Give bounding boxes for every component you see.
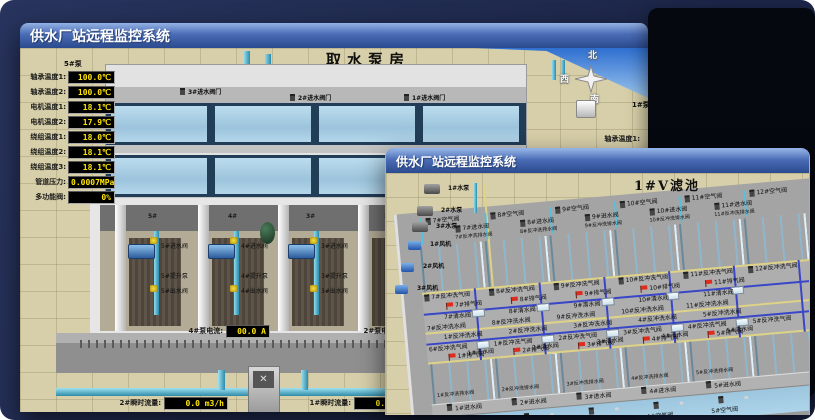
bay-inlet-valve-icon[interactable] <box>230 237 237 244</box>
front-window-titlebar[interactable]: 供水厂站远程监控系统 <box>386 149 809 173</box>
front-exhaust-valve-flag-icon[interactable] <box>514 348 520 353</box>
exhaust-valve-flag-icon[interactable] <box>706 280 712 285</box>
pump1-icon[interactable] <box>576 100 596 118</box>
value-display: 0% <box>68 191 115 204</box>
value-display: 0.0007MPa <box>68 176 115 189</box>
front-exhaust-valve-flag-icon[interactable] <box>579 342 585 347</box>
value-display: 17.9℃ <box>68 116 115 129</box>
front-exhaust-valve-flag-icon[interactable] <box>449 353 455 358</box>
inlet-valve-icon[interactable] <box>585 214 591 221</box>
flow2-display: 0.0 m3/h <box>164 397 228 410</box>
filter-cell-back[interactable] <box>744 213 809 264</box>
front-window-title: 供水厂站远程监控系统 <box>396 153 516 170</box>
backwash-drain-valve-label: 9#反冲洗排水阀 <box>585 221 623 229</box>
water-pump-icon[interactable] <box>412 222 428 232</box>
backwash-air-valve-icon[interactable] <box>618 277 624 284</box>
lift-pump[interactable] <box>208 244 235 259</box>
backwash-drain-valve-label: 11#反冲洗排水阀 <box>714 210 755 219</box>
hall-pillar <box>115 205 126 331</box>
pool-cell <box>319 106 415 142</box>
pump5-panel-header: 5#泵 <box>64 61 82 68</box>
bay-outlet-valve-icon[interactable] <box>310 285 317 292</box>
back-window-title: 供水厂站远程监控系统 <box>30 26 170 46</box>
panel-row-label: 绕组温度1: <box>22 134 66 141</box>
bay-pump-label: 5#提升泵 <box>161 274 188 280</box>
value-display: 18.1℃ <box>68 146 115 159</box>
backwash-drain-valve-label: 8#反冲洗排水阀 <box>520 227 558 235</box>
air-valve-icon[interactable] <box>749 190 755 197</box>
clean-water-tank-icon <box>601 297 615 306</box>
bay-inlet-valve-label: 5#进水阀 <box>161 244 188 250</box>
bay-number-label: 4# <box>228 214 237 220</box>
front-air-valve-icon[interactable] <box>718 396 724 403</box>
front-window: 供水厂站远程监控系统 1#V滤池 7#空气阀8#空气阀9#空气阀10#空气阀11… <box>385 148 810 415</box>
gate-valve-icon[interactable] <box>290 94 295 101</box>
hall-back-wall <box>100 205 396 231</box>
outlet-stub-pipe <box>218 370 225 390</box>
channel-float <box>550 413 554 415</box>
gate-valve-icon[interactable] <box>180 88 185 95</box>
value-display: 18.0℃ <box>68 131 115 144</box>
pool-cell <box>111 106 207 142</box>
front-exhaust-valve-flag-icon[interactable] <box>644 336 650 341</box>
bay-inlet-valve-icon[interactable] <box>150 237 157 244</box>
value-display: 18.1℃ <box>68 101 115 114</box>
pump1-header: 1#泵 <box>632 102 648 109</box>
air-valve-label: 10#空气阀 <box>627 199 658 208</box>
inlet-valve-icon[interactable] <box>714 203 720 210</box>
front-inlet-valve-icon[interactable] <box>641 387 647 394</box>
air-valve-icon[interactable] <box>684 195 690 202</box>
backwash-air-valve-icon[interactable] <box>554 283 560 290</box>
hall-pillar <box>358 205 369 331</box>
backwash-air-valve-icon[interactable] <box>683 272 689 279</box>
air-valve-icon[interactable] <box>620 201 626 208</box>
backwash-air-valve-icon[interactable] <box>748 266 754 273</box>
panel-row-label: 电机温度1: <box>22 104 66 111</box>
equipment-label: 3#水泵 <box>436 224 457 230</box>
bay-number-label: 3# <box>306 214 315 220</box>
filter-cell-front[interactable] <box>754 331 809 376</box>
front-air-valve-icon[interactable] <box>589 407 595 414</box>
value-display: 100.0℃ <box>68 71 115 84</box>
equipment-label: 1#水泵 <box>448 186 469 192</box>
panel-row-label: 轴承温度2: <box>22 89 66 96</box>
backwash-drain-valve-label: 10#反冲洗排水阀 <box>649 215 690 224</box>
blower-fan-icon[interactable] <box>401 263 414 272</box>
panel-row-label: 绕组温度3: <box>22 164 66 171</box>
equipment-label: 2#风机 <box>423 264 444 270</box>
equipment-column: 1#水泵2#水泵3#水泵1#风机2#风机3#风机 <box>386 173 506 313</box>
water-pump-icon[interactable] <box>417 206 433 216</box>
air-valve-label: 12#空气阀 <box>756 188 787 197</box>
bay-outlet-valve-icon[interactable] <box>150 285 157 292</box>
filter-cell-back[interactable] <box>614 224 680 275</box>
inlet-valve-icon[interactable] <box>520 220 526 227</box>
air-valve-label: 9#空气阀 <box>562 205 589 213</box>
exhaust-valve-flag-icon[interactable] <box>512 297 518 302</box>
compass-star-icon <box>573 64 609 94</box>
pump4-current-display: 00.0 A <box>226 325 270 338</box>
water-pump-icon[interactable] <box>424 184 440 194</box>
panel-row-label: 绕组温度2: <box>22 149 66 156</box>
gate-valve-label: 2#进水阀门 <box>298 96 331 102</box>
scene-title-filter: 1#V滤池 <box>634 175 700 194</box>
equipment-label: 3#风机 <box>417 286 438 292</box>
flow2-label: 2#瞬时流量: <box>103 400 161 407</box>
hall-pillar <box>278 205 289 331</box>
bay-inlet-valve-label: 3#进水阀 <box>321 244 348 250</box>
exhaust-valve-flag-icon[interactable] <box>576 291 582 296</box>
pool-cell <box>215 158 311 194</box>
front-inlet-valve-icon[interactable] <box>706 381 712 388</box>
desktop: 供水厂站远程监控系统 取水泵房 ✕ <box>0 0 815 420</box>
front-inlet-valve-icon[interactable] <box>447 404 453 411</box>
pool-cell <box>215 106 311 142</box>
gate-valve-icon[interactable] <box>404 94 409 101</box>
filter-cell-back[interactable] <box>549 230 615 281</box>
value-display: 100.0℃ <box>68 86 115 99</box>
air-valve-label: 11#空气阀 <box>692 193 723 202</box>
pool-cell <box>111 158 207 194</box>
surge-tank[interactable] <box>260 222 275 244</box>
panel-row-label: 电机温度2: <box>22 119 66 126</box>
bay-inlet-valve-label: 4#进水阀 <box>241 244 268 250</box>
front-air-valve-label: 4#空气阀 <box>646 412 673 415</box>
front-inlet-valve-icon[interactable] <box>511 398 517 405</box>
front-exhaust-valve-flag-icon[interactable] <box>708 331 714 336</box>
bay-pump-label: 3#提升泵 <box>321 274 348 280</box>
bay-outlet-valve-label: 4#出水阀 <box>241 289 268 295</box>
blower-fan-icon[interactable] <box>395 285 408 294</box>
air-valve-icon[interactable] <box>555 207 561 214</box>
compass-north-label: 北 <box>588 52 597 61</box>
flow-meter-icon: ✕ <box>253 371 274 388</box>
bay-outlet-valve-icon[interactable] <box>230 285 237 292</box>
front-air-valve-icon[interactable] <box>653 402 659 409</box>
bay-outlet-valve-label: 5#出水阀 <box>161 289 188 295</box>
equipment-label: 1#风机 <box>430 242 451 248</box>
filter-pool-scene: 1#V滤池 7#空气阀8#空气阀9#空气阀10#空气阀11#空气阀12#空气阀7… <box>386 173 809 415</box>
back-window-titlebar[interactable]: 供水厂站远程监控系统 <box>20 23 648 48</box>
exhaust-valve-flag-icon[interactable] <box>641 285 647 290</box>
lift-pump[interactable] <box>128 244 155 259</box>
pool-cell <box>423 106 519 142</box>
compass-west-label: 西 <box>560 76 569 85</box>
inlet-valve-icon[interactable] <box>649 208 655 215</box>
filter-cell-back[interactable] <box>679 219 745 270</box>
front-inlet-valve-icon[interactable] <box>576 392 582 399</box>
front-air-valve-icon[interactable] <box>524 413 530 415</box>
panel-row-label: 轴承温度1: <box>22 74 66 81</box>
equipment-label: 2#水泵 <box>441 208 462 214</box>
outlet-stub-pipe <box>301 370 308 390</box>
bay-outlet-valve-label: 3#出水阀 <box>321 289 348 295</box>
gate-valve-label: 1#进水阀门 <box>412 96 445 102</box>
panel-row-label: 多功能阀: <box>22 194 66 201</box>
pump4-current-label: 4#泵电流: <box>175 328 223 335</box>
panel-row-label: 管道压力: <box>22 179 66 186</box>
bay-pump-label: 4#提升泵 <box>241 274 268 280</box>
pump1-panel-label: 轴承温度1: <box>570 136 640 143</box>
blower-fan-icon[interactable] <box>408 241 421 250</box>
value-display: 18.1℃ <box>68 161 115 174</box>
pump-hall <box>90 198 402 333</box>
hall-pillar <box>198 205 209 331</box>
bay-inlet-valve-icon[interactable] <box>310 237 317 244</box>
lift-pump[interactable] <box>288 244 315 259</box>
gate-valve-label: 3#进水阀门 <box>188 90 221 96</box>
clean-water-tank-icon <box>536 303 550 312</box>
bay-number-label: 5# <box>148 214 157 220</box>
flow-meter-cabinet[interactable]: ✕ <box>248 366 280 412</box>
flow1-label: 1#瞬时流量: <box>293 400 351 407</box>
